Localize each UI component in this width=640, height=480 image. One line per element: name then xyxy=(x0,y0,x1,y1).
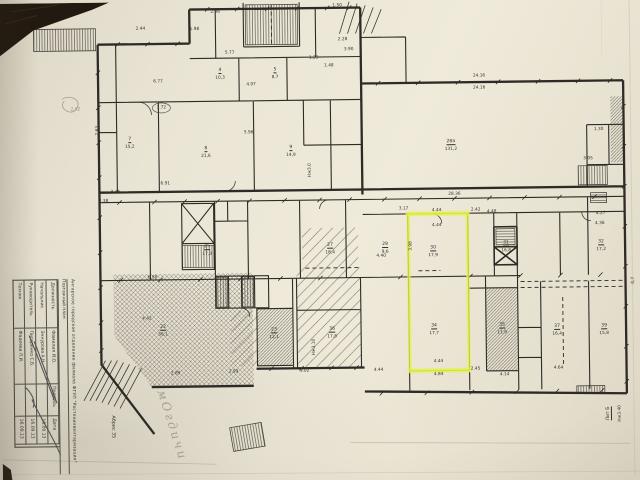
plan-label: 39 xyxy=(601,323,607,329)
plan-label: 24.16 xyxy=(473,73,485,78)
plan-label: 28.36 xyxy=(448,192,460,197)
plan-label: 34 xyxy=(431,323,437,329)
plan-label: 5.96 xyxy=(244,130,254,135)
plan-label: 17,3 xyxy=(202,252,212,257)
plan-label: Нж3.10 xyxy=(312,339,317,356)
plan-label: 7 xyxy=(128,137,131,143)
tb-header-date: Дата xyxy=(48,416,59,444)
plan-label: 2.86 xyxy=(210,10,220,15)
plan-label: 4.40 xyxy=(376,254,386,259)
plan-label: 14,9 xyxy=(286,153,296,158)
plan-label: 30 xyxy=(430,245,436,251)
plan-label: 1.48 xyxy=(324,63,334,68)
plan-label: 37 xyxy=(554,324,560,330)
plan-label: 2.44 xyxy=(136,27,146,32)
title-block-table: Должность Фамилия И.О. Подпись Дата Нача… xyxy=(12,279,59,448)
plan-label: 27 xyxy=(327,243,333,249)
plan-label: 23 xyxy=(271,327,277,333)
plan-label: 1.72 xyxy=(157,105,167,110)
tb-row-role: Техник xyxy=(13,281,25,329)
plan-label: 22 xyxy=(160,325,166,331)
plan-label: 4.48 xyxy=(487,209,497,214)
plan-label: 3.17 xyxy=(399,206,409,211)
plan-label: 3.05 xyxy=(583,156,593,161)
plan-label: 17,7 xyxy=(429,331,439,336)
plan-label: 16,8 xyxy=(501,248,511,253)
plan-label: 0,7 xyxy=(631,277,636,284)
plan-label: 2.89 xyxy=(171,371,181,376)
plan-label: 12,1 xyxy=(269,335,279,340)
plan-tilt-wrapper: 2.861.502.441.982.283.905.771.231.48410,… xyxy=(0,0,640,480)
tb-row-role: Руководитель xyxy=(24,280,36,328)
plan-label: Нж3.0 xyxy=(308,163,313,177)
plan-label: 21,6 xyxy=(201,154,211,159)
tb-row-sign xyxy=(37,384,48,416)
plan-label: 31 xyxy=(503,240,509,246)
tb-row-date: 16.09.13 xyxy=(37,416,48,444)
plan-label: Нж3.40 xyxy=(618,405,623,422)
plan-label: 3.45 xyxy=(111,190,121,195)
tb-row-name: Эннурова А.Н. xyxy=(36,328,48,384)
plan-label: 1.50 xyxy=(332,3,342,8)
plan-label: 9.02 xyxy=(300,369,310,374)
plan-label: 15,2 xyxy=(125,145,135,150)
plan-label: 4.36 xyxy=(595,221,605,226)
tb-header-sign: Подпись xyxy=(48,384,59,416)
plan-label: 4 xyxy=(218,68,221,74)
plan-label: 29 xyxy=(382,242,388,248)
tb-row-name: Фадеева Л.И. xyxy=(14,329,26,385)
plan-label: 4.14 xyxy=(500,372,510,377)
plan-label: 5.77 xyxy=(225,51,235,56)
plan-label: 4.64 xyxy=(554,366,564,371)
plan-label: 131,2 xyxy=(445,147,457,152)
plan-label: 24.16 xyxy=(473,85,485,90)
plan-label: 8,7 xyxy=(272,75,279,80)
plan-label: 25 xyxy=(204,244,210,250)
plan-label: 2.38 xyxy=(99,199,109,204)
tb-row-sign xyxy=(26,384,37,416)
plan-label: 28а xyxy=(446,139,455,145)
plan-label: 1,92 xyxy=(71,107,81,112)
tb-row-role: Начальник xyxy=(35,280,47,328)
plan-label: 2.99 xyxy=(229,370,239,375)
plan-label: 36 xyxy=(329,327,335,333)
plan-label: 6.77 xyxy=(153,79,163,84)
plan-label: 2.42 xyxy=(471,208,481,213)
plan-label: 56,1 xyxy=(158,332,168,337)
plan-label: 17,8 xyxy=(327,334,337,339)
tb-row-name: Пигоренко С.Б. xyxy=(25,328,37,384)
abris-note: Абрис 35 xyxy=(110,416,115,439)
plan-label: Лит Б xyxy=(606,407,613,421)
plan-label: 2.63 xyxy=(95,126,100,136)
plan-labels-layer: 2.861.502.441.982.283.905.771.231.48410,… xyxy=(0,0,640,480)
plan-label: 16,4 xyxy=(552,332,562,337)
plan-label: 4.44 xyxy=(374,368,384,373)
plan-label: 35 xyxy=(499,323,505,329)
plan-label: 17,2 xyxy=(596,247,606,252)
plan-label: 5 xyxy=(273,67,276,73)
plan-label: 6.58 xyxy=(148,275,158,280)
plan-label: 1.30 xyxy=(594,127,604,132)
plan-label: 6.91 xyxy=(160,181,170,186)
plan-label: 3.98 xyxy=(409,241,414,251)
title-block: Ангарское городское отделение филиала ФГ… xyxy=(12,279,78,475)
plan-label: 32 xyxy=(598,239,604,245)
tb-header-name: Фамилия И.О. xyxy=(47,328,59,384)
plan-label: 4.44 xyxy=(432,223,442,228)
plan-label: 8 xyxy=(204,146,207,152)
plan-label: 11,9 xyxy=(497,330,507,335)
plan-label: 10,3 xyxy=(215,76,225,81)
plan-label: 4.44 xyxy=(432,208,442,213)
plan-label: 3.90 xyxy=(344,47,354,52)
plan-label: 4.27 xyxy=(596,211,606,216)
plan-label: 2.45 xyxy=(471,367,481,372)
tb-row-date: 16.09.13 xyxy=(26,416,37,444)
plan-label: 4.44 xyxy=(434,359,444,364)
plan-label: 4.84 xyxy=(434,372,444,377)
plan-label: 1.98 xyxy=(190,27,200,32)
plan-label: 18,4 xyxy=(325,250,335,255)
plan-label: 9 xyxy=(289,145,292,151)
plan-label: 15,8 xyxy=(599,331,609,336)
plan-label: 17,9 xyxy=(428,253,438,258)
tb-row-date: 16.09.13 xyxy=(15,417,26,445)
tb-header-role: Должность xyxy=(46,280,58,328)
plan-label: 2.28 xyxy=(338,37,348,42)
tb-row-sign xyxy=(15,385,26,417)
plan-label: 1.23 xyxy=(309,56,319,61)
plan-label: 4.42 xyxy=(142,317,152,322)
plan-label: 4.97 xyxy=(246,82,256,87)
photo-stage: 2.861.502.441.982.283.905.771.231.48410,… xyxy=(0,0,640,480)
